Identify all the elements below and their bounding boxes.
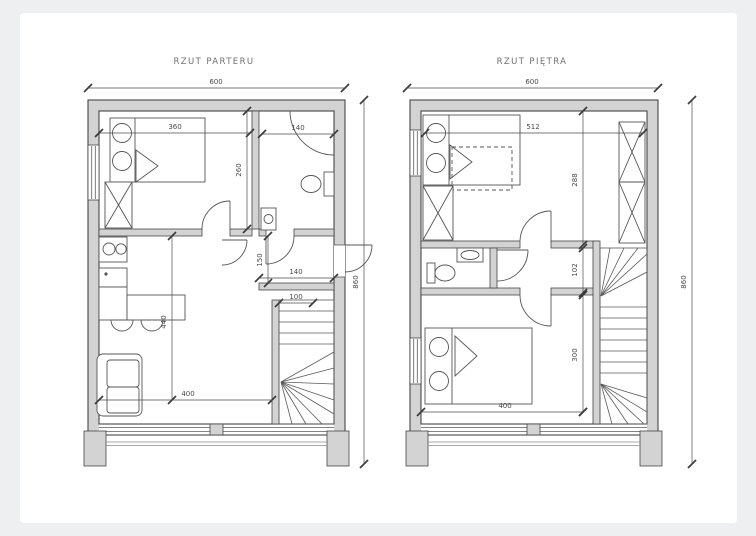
dimension: 288 [571,107,587,249]
dimension-label: 860 [352,275,360,288]
dimension-label: 140 [291,124,304,132]
dimension-label: 600 [525,78,538,86]
window [410,130,421,176]
stairs [279,300,334,424]
dimension: 260 [235,107,251,233]
dimension-label: 440 [160,315,168,328]
glazed-wall [99,424,334,435]
dimension: 600 [403,78,662,92]
wardrobe [423,186,453,240]
dimension-label: 860 [680,275,688,288]
bed [423,115,520,190]
washbasin [457,248,483,262]
dimension-label: 360 [168,123,181,131]
floor-plan-drawing: RZUT PARTERU [0,0,756,536]
dimension-label: 600 [209,78,222,86]
bed [110,118,205,182]
upper-plan: RZUT PIĘTRA [406,57,662,466]
dimension-label: 260 [235,163,243,176]
window [410,338,421,384]
kitchen-sink [99,237,127,262]
dimension-label: 100 [289,293,302,301]
dining-chairs [111,320,163,331]
stairs [600,248,647,424]
dimension-label: 400 [181,390,194,398]
dimension: 140 [255,268,338,282]
dimension: 860 [352,96,368,468]
wardrobe [105,182,132,228]
toilet [301,172,334,196]
bed [425,328,532,404]
upper-plan-title: RZUT PIĘTRA [497,57,568,67]
washbasin [261,208,276,230]
glazed-wall [421,424,647,435]
dimension: 600 [84,78,349,92]
window [88,145,99,200]
dimension-label: 288 [571,173,579,186]
dimension: 860 [680,96,696,468]
entrance-door [334,245,372,277]
door-arc [497,211,551,326]
ground-plan: RZUT PARTERU [84,57,372,466]
sofa [97,354,142,416]
shower [290,111,334,155]
wardrobe [619,122,645,243]
porch-pillar [84,431,349,466]
dimension-label: 300 [571,348,579,361]
dimension-label: 512 [526,123,539,131]
dimension-label: 140 [289,268,302,276]
dimension-label: 150 [256,253,264,266]
toilet [427,263,455,283]
dimension: 300 [571,291,587,416]
ground-plan-title: RZUT PARTERU [173,57,254,67]
dimension-label: 102 [571,263,579,276]
porch-pillar [406,431,662,466]
stove [99,268,127,287]
dimension-label: 400 [498,402,511,410]
